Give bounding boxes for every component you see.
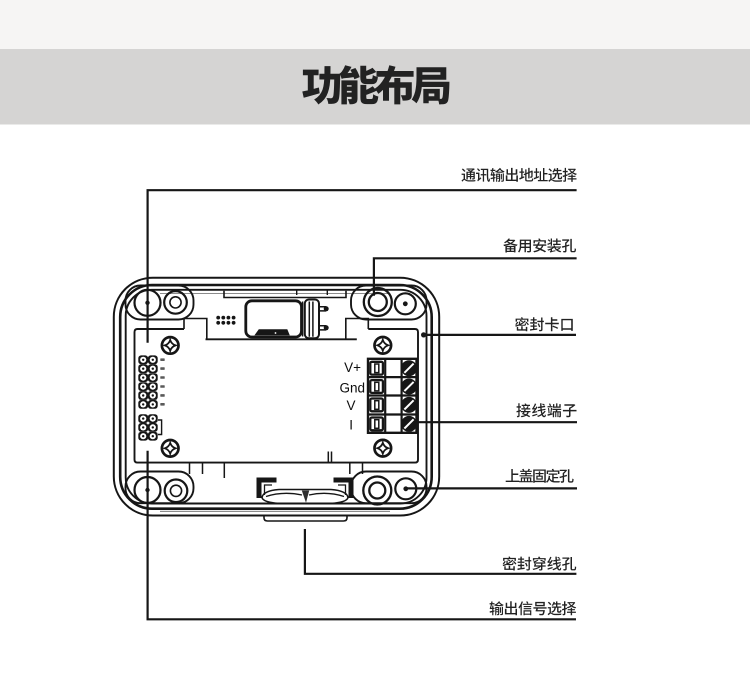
svg-text:V+: V+ xyxy=(344,360,361,375)
svg-text:Gnd: Gnd xyxy=(339,381,365,396)
svg-text:V: V xyxy=(346,398,355,413)
svg-text:I: I xyxy=(349,418,353,433)
